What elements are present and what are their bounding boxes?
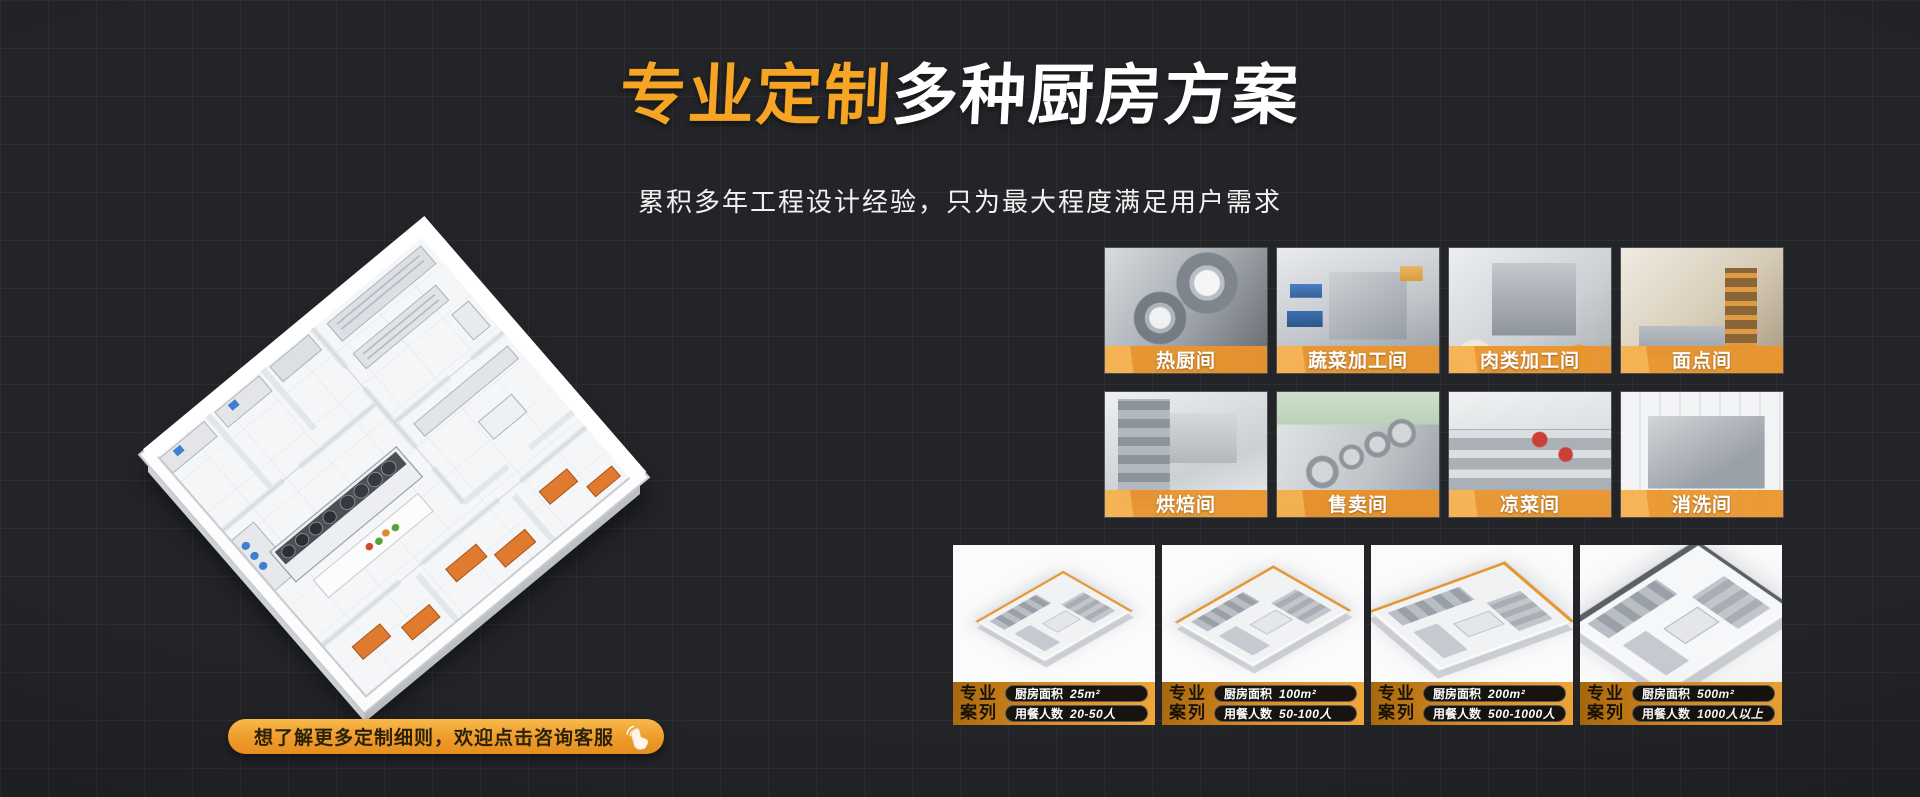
- case-render: [953, 545, 1155, 682]
- room-tiles-grid: 热厨间 蔬菜加工间 肉类加工间 面点间 烘焙间 售卖间 凉菜间 消洗间: [1105, 248, 1783, 517]
- case-people-pill: 用餐人数50-100人: [1214, 705, 1357, 722]
- room-label: 消洗间: [1621, 490, 1783, 517]
- case-render: [1162, 545, 1364, 682]
- case-area-pill: 厨房面积25m²: [1005, 685, 1148, 702]
- room-tile-vegetable: 蔬菜加工间: [1277, 248, 1439, 373]
- click-hand-icon: [622, 722, 652, 752]
- case-tile-500m2: 专业案列 厨房面积500m² 用餐人数1000人以上: [1580, 545, 1782, 725]
- case-area-pill: 厨房面积200m²: [1423, 685, 1566, 702]
- room-tile-serving: 售卖间: [1277, 392, 1439, 517]
- case-info: 专业案列 厨房面积500m² 用餐人数1000人以上: [1580, 682, 1782, 725]
- room-label: 蔬菜加工间: [1277, 346, 1439, 373]
- case-tiles-grid: 专业案列 厨房面积25m² 用餐人数20-50人 专业案列 厨房面积100m² …: [953, 545, 1782, 725]
- case-render: [1371, 545, 1573, 682]
- case-area-pill: 厨房面积100m²: [1214, 685, 1357, 702]
- page-subtitle: 累积多年工程设计经验，只为最大程度满足用户需求: [0, 182, 1920, 219]
- room-tile-meat: 肉类加工间: [1449, 248, 1611, 373]
- title-rest: 多种厨房方案: [890, 58, 1302, 132]
- case-tag: 专业案列: [1169, 685, 1207, 722]
- case-render: [1580, 545, 1782, 682]
- room-tile-pastry: 面点间: [1621, 248, 1783, 373]
- room-label: 烘焙间: [1105, 490, 1267, 517]
- room-tile-cold-dish: 凉菜间: [1449, 392, 1611, 517]
- room-tile-hot-kitchen: 热厨间: [1105, 248, 1267, 373]
- room-label-text: 消洗间: [1672, 490, 1732, 517]
- room-label-text: 热厨间: [1156, 346, 1216, 373]
- case-tile-200m2: 专业案列 厨房面积200m² 用餐人数500-1000人: [1371, 545, 1573, 725]
- room-label-text: 凉菜间: [1500, 490, 1560, 517]
- room-label-text: 肉类加工间: [1480, 346, 1580, 373]
- room-label: 热厨间: [1105, 346, 1267, 373]
- case-tag: 专业案列: [960, 685, 998, 722]
- case-info: 专业案列 厨房面积25m² 用餐人数20-50人: [953, 682, 1155, 725]
- room-tile-washing: 消洗间: [1621, 392, 1783, 517]
- room-label: 肉类加工间: [1449, 346, 1611, 373]
- case-tile-100m2: 专业案列 厨房面积100m² 用餐人数50-100人: [1162, 545, 1364, 725]
- case-tile-25m2: 专业案列 厨房面积25m² 用餐人数20-50人: [953, 545, 1155, 725]
- room-label: 面点间: [1621, 346, 1783, 373]
- title-highlight: 专业定制: [618, 58, 894, 132]
- room-tile-baking: 烘焙间: [1105, 392, 1267, 517]
- contact-cta-button[interactable]: 想了解更多定制细则，欢迎点击咨询客服: [228, 719, 664, 754]
- case-people-pill: 用餐人数20-50人: [1005, 705, 1148, 722]
- room-label: 售卖间: [1277, 490, 1439, 517]
- room-label: 凉菜间: [1449, 490, 1611, 517]
- room-label-text: 烘焙间: [1156, 490, 1216, 517]
- cta-label: 想了解更多定制细则，欢迎点击咨询客服: [254, 723, 614, 750]
- case-tag: 专业案列: [1587, 685, 1625, 722]
- page-title: 专业定制多种厨房方案: [0, 58, 1920, 134]
- case-area-pill: 厨房面积500m²: [1632, 685, 1775, 702]
- case-people-pill: 用餐人数1000人以上: [1632, 705, 1775, 722]
- room-label-text: 蔬菜加工间: [1308, 346, 1408, 373]
- case-info: 专业案列 厨房面积200m² 用餐人数500-1000人: [1371, 682, 1573, 725]
- case-tag: 专业案列: [1378, 685, 1416, 722]
- case-info: 专业案列 厨房面积100m² 用餐人数50-100人: [1162, 682, 1364, 725]
- kitchen-floorplan-illustration: [100, 200, 800, 740]
- room-label-text: 售卖间: [1328, 490, 1388, 517]
- room-label-text: 面点间: [1672, 346, 1732, 373]
- case-people-pill: 用餐人数500-1000人: [1423, 705, 1566, 722]
